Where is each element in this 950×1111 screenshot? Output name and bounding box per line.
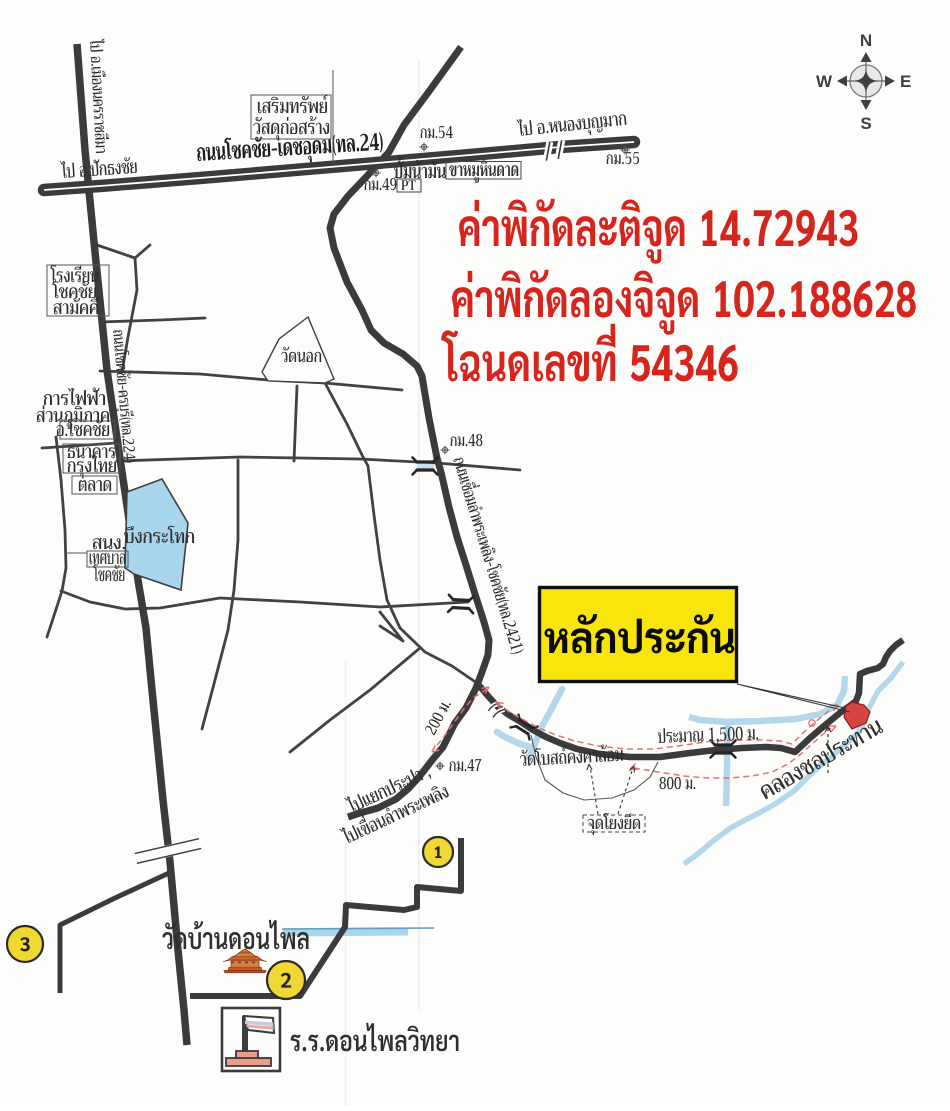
svg-text:E: E xyxy=(900,72,911,91)
svg-text:S: S xyxy=(860,114,871,133)
svg-text:N: N xyxy=(860,31,872,50)
svg-text:W: W xyxy=(816,72,833,91)
